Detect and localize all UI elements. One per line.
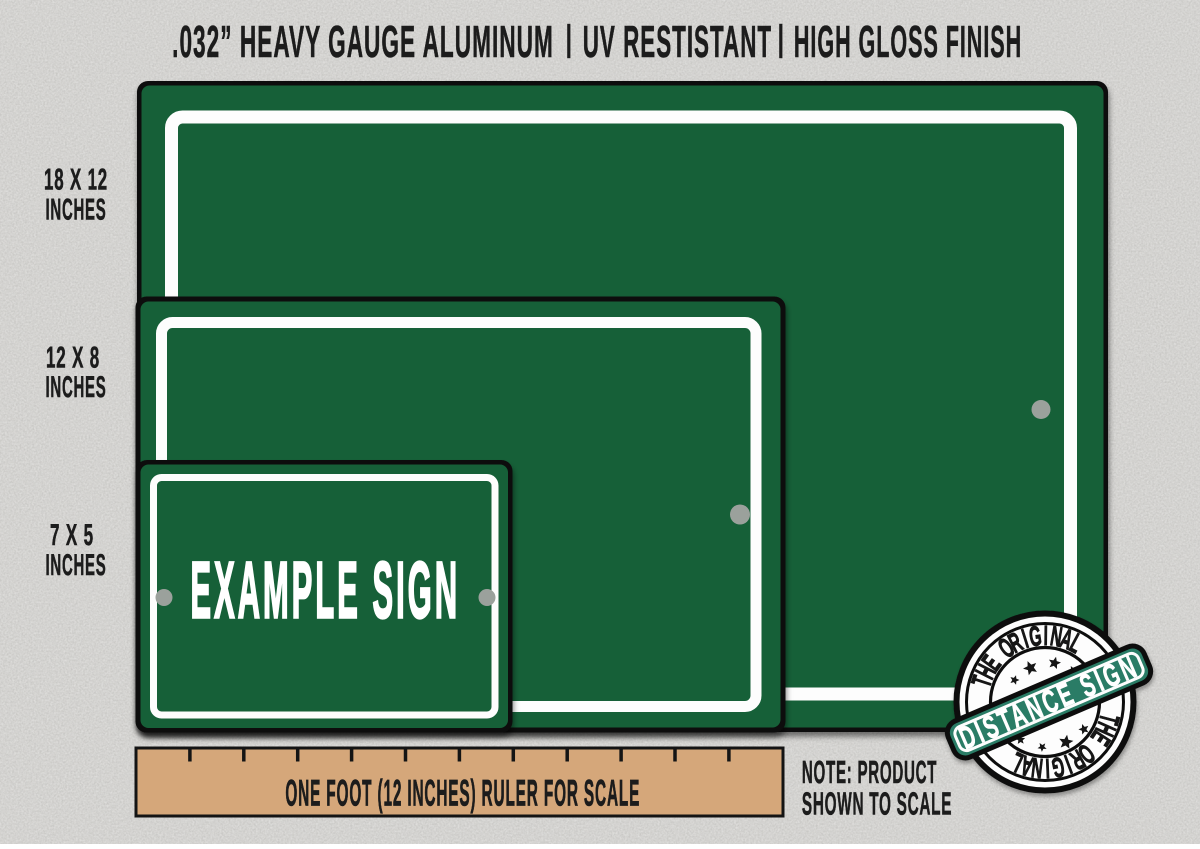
svg-text:INCHES: INCHES xyxy=(46,549,107,582)
svg-text:ONE FOOT (12 INCHES) RULER FOR: ONE FOOT (12 INCHES) RULER FOR SCALE xyxy=(285,773,640,814)
svg-text:SHOWN TO SCALE: SHOWN TO SCALE xyxy=(802,785,952,821)
svg-text:INCHES: INCHES xyxy=(46,194,107,227)
svg-text:HIGH GLOSS FINISH: HIGH GLOSS FINISH xyxy=(794,16,1022,67)
svg-text:12 X 8: 12 X 8 xyxy=(46,342,100,375)
svg-text:7 X 5: 7 X 5 xyxy=(50,519,94,552)
svg-text:UV RESTISTANT: UV RESTISTANT xyxy=(583,16,772,67)
svg-text:I: I xyxy=(1043,620,1048,651)
svg-text:EXAMPLE SIGN: EXAMPLE SIGN xyxy=(190,545,460,634)
svg-text:.032” HEAVY GAUGE ALUMINUM: .032” HEAVY GAUGE ALUMINUM xyxy=(172,16,554,67)
svg-text:18 X 12: 18 X 12 xyxy=(44,163,108,196)
svg-text:INCHES: INCHES xyxy=(46,371,107,404)
